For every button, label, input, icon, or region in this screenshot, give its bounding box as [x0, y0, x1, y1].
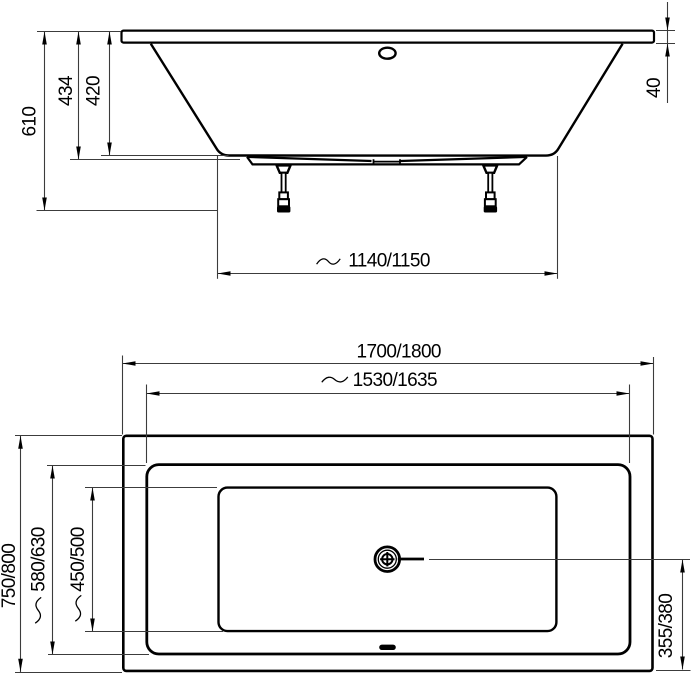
- svg-text:1700/1800: 1700/1800: [356, 341, 440, 362]
- svg-text:580/630: 580/630: [29, 527, 50, 592]
- svg-text:1140/1150: 1140/1150: [348, 251, 430, 272]
- svg-text:610: 610: [19, 107, 40, 137]
- svg-text:434: 434: [56, 75, 77, 106]
- svg-text:40: 40: [644, 78, 665, 98]
- svg-text:420: 420: [84, 76, 105, 106]
- svg-text:450/500: 450/500: [68, 527, 89, 592]
- svg-text:355/380: 355/380: [656, 594, 677, 659]
- svg-text:1530/1635: 1530/1635: [353, 370, 437, 391]
- svg-text:750/800: 750/800: [0, 544, 20, 609]
